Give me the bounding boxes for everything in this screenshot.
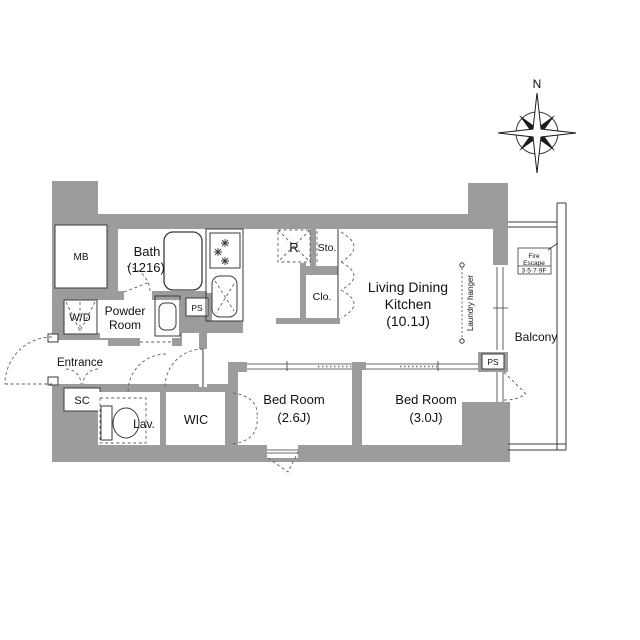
bath-size-label: (1216) <box>127 260 165 275</box>
storage-label: Sto. <box>318 242 337 254</box>
ldk-size-label: (10.1J) <box>386 313 430 329</box>
bath-door-gap <box>124 291 152 300</box>
fire-escape-sign: Fire Escape 3·5·7·9F <box>518 243 558 275</box>
pipe-space-left-label: PS <box>191 303 203 313</box>
mb-label: MB <box>74 252 89 263</box>
bath-label: Bath <box>134 244 161 259</box>
powder-door-gap <box>140 338 172 346</box>
room-bedroom-small <box>238 372 352 445</box>
entrance-label: Entrance <box>57 357 103 369</box>
ldk-label-1: Living Dining <box>368 279 448 295</box>
bedroom-small-size: (2.6J) <box>277 410 310 425</box>
compass-rose: N <box>498 77 576 173</box>
window-strip-bedroom <box>493 372 508 402</box>
door-jamb <box>48 334 58 342</box>
window-strip-ldk <box>493 267 508 352</box>
shoe-closet-label: SC <box>74 395 89 407</box>
balcony-outline <box>508 203 566 450</box>
balcony-label: Balcony <box>515 330 558 344</box>
fire-escape-line1: Fire <box>528 253 540 260</box>
bedroom-small-label: Bed Room <box>263 392 324 407</box>
wic-label: WIC <box>184 413 208 427</box>
bedroom-large-size: (3.0J) <box>409 410 442 425</box>
door-jamb <box>48 377 58 385</box>
closet-label: Clo. <box>313 291 332 303</box>
front-door-arc <box>5 337 52 384</box>
laundry-hanger-label: Laundry hanger <box>466 275 475 331</box>
toilet-tank-icon <box>101 406 112 440</box>
bottom-window-notch <box>267 445 298 458</box>
lavatory-label: Lav. <box>133 417 155 431</box>
powder-room-label-2: Room <box>109 318 141 332</box>
compass-north-label: N <box>533 77 542 91</box>
floor-plan: Fire Escape 3·5·7·9F N MB Bath (1216) Po… <box>0 0 640 640</box>
ldk-label-2: Kitchen <box>385 296 432 312</box>
fire-escape-line2: Escape <box>523 260 545 267</box>
pipe-space-right-label: PS <box>487 357 499 367</box>
washer-dryer-label: W/D <box>69 312 90 324</box>
powder-room-label-1: Powder <box>105 304 146 318</box>
bedroom-large-label: Bed Room <box>395 392 456 407</box>
fire-escape-line3: 3·5·7·9F <box>522 268 547 275</box>
refrigerator-label: R <box>289 240 298 255</box>
room-living-dining-kitchen <box>207 229 493 362</box>
floor-plan-page: Fire Escape 3·5·7·9F N MB Bath (1216) Po… <box>0 0 640 640</box>
